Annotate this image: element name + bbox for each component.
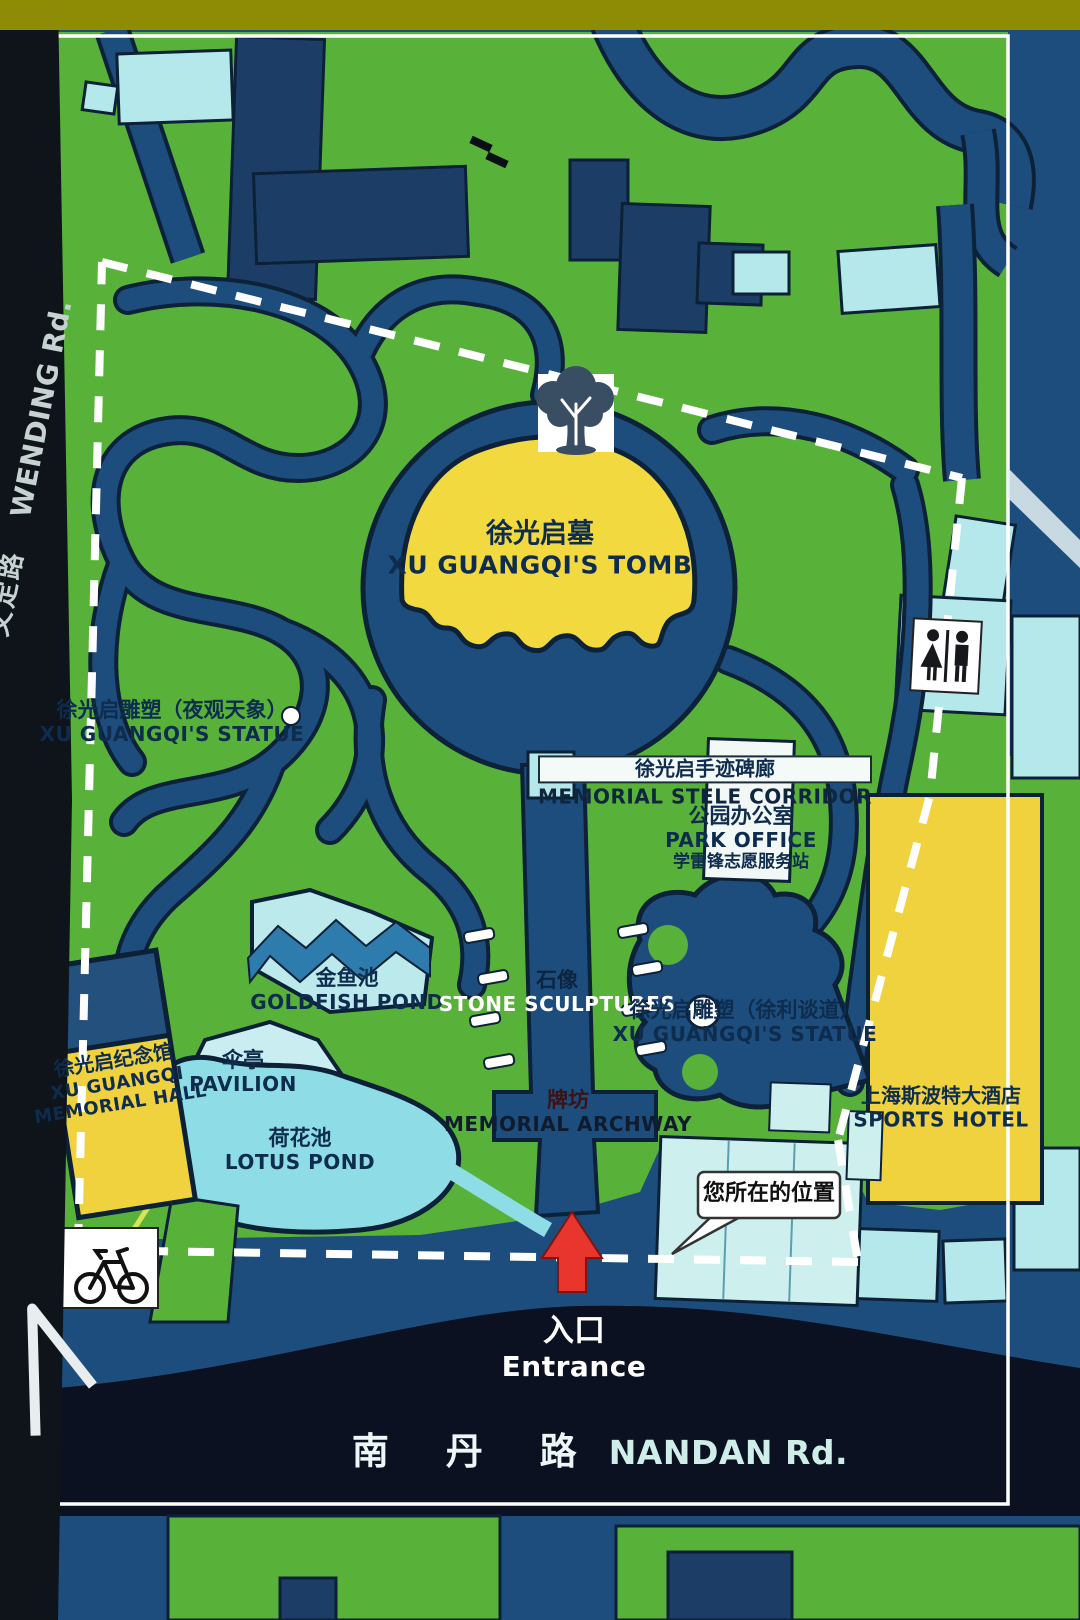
tomb-label: 徐光启墓 XU GUANGQI'S TOMB bbox=[388, 518, 693, 579]
pavilion-label: 伞亭 PAVILION bbox=[189, 1048, 297, 1096]
nandan-road-label: 南 丹 路NANDAN Rd. bbox=[352, 1430, 848, 1474]
frame-olive-band bbox=[0, 0, 1080, 30]
park-office-label: 公园办公室 PARK OFFICE 学雷锋志愿服务站 bbox=[665, 804, 817, 872]
you-are-here-label: 您所在的位置 bbox=[703, 1181, 835, 1207]
bicycle-icon bbox=[62, 1228, 158, 1308]
goldfish-pond-label: 金鱼池 GOLDFISH POND bbox=[250, 966, 443, 1014]
statue-xuli-label: 徐光启雕塑（徐利谈道） XU GUANGQI'S STATUE bbox=[613, 998, 878, 1046]
sports-hotel-label: 上海斯波特大酒店 SPORTS HOTEL bbox=[853, 1084, 1028, 1131]
tree-icon bbox=[536, 366, 614, 455]
sports-hotel-building bbox=[868, 795, 1042, 1203]
lotus-pond-label: 荷花池 LOTUS POND bbox=[225, 1126, 375, 1174]
entrance-label: 入口 Entrance bbox=[502, 1313, 647, 1383]
bottom-strip bbox=[168, 1516, 1080, 1620]
park-map-sign: 文定路WENDING Rd. 徐光启墓 XU GUANGQI'S TOMB 徐光… bbox=[0, 0, 1080, 1620]
archway-label: 牌坊 MEMORIAL ARCHWAY bbox=[444, 1088, 692, 1136]
stele-corridor-label: 徐光启手迹碑廊 MEMORIAL STELE CORRIDOR bbox=[538, 755, 872, 808]
restroom-icon bbox=[910, 618, 982, 693]
statue-night-label: 徐光启雕塑（夜观天象） XU GUANGQI'S STATUE bbox=[40, 698, 305, 746]
